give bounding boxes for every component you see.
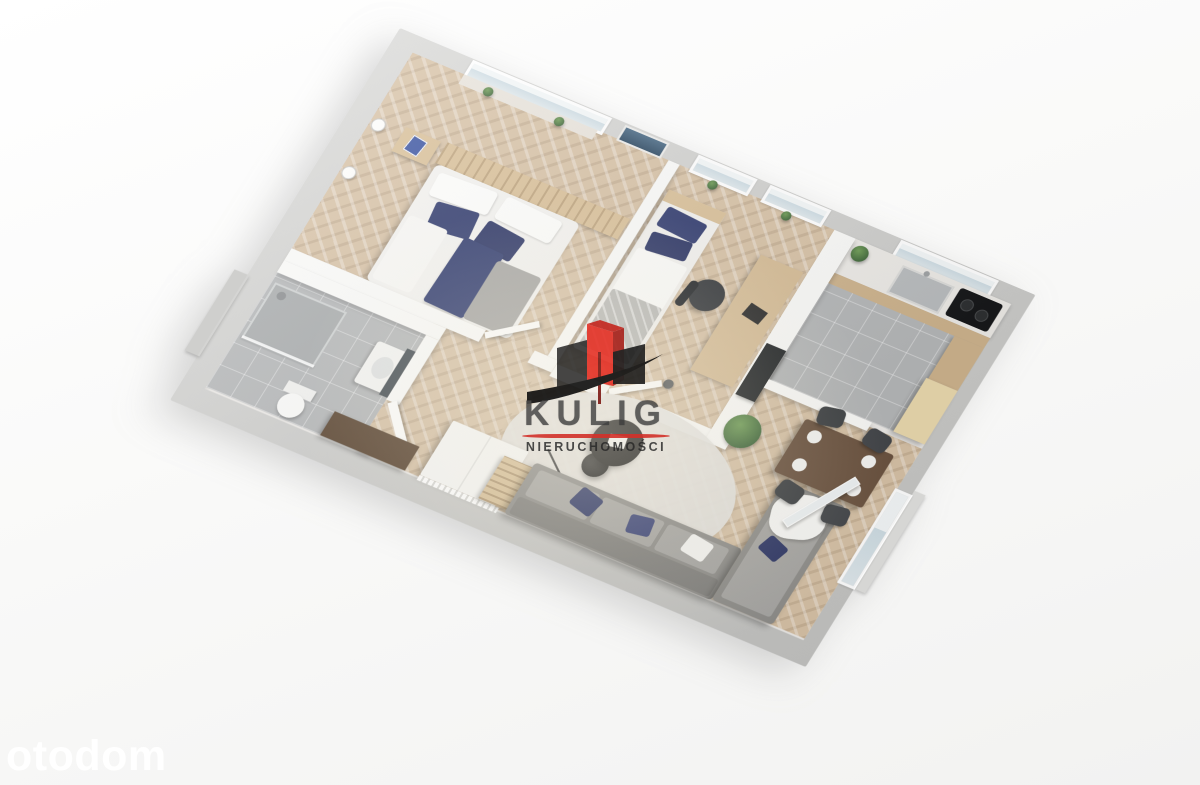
logo-underline: [522, 434, 670, 438]
agency-subtitle: NIERUCHOMOŚCI: [518, 440, 674, 454]
floor-plan-scene: KULIG NIERUCHOMOŚCI otodom: [0, 0, 1200, 785]
portal-watermark: otodom: [6, 732, 167, 781]
agency-logo-watermark: KULIG NIERUCHOMOŚCI: [518, 316, 674, 454]
agency-name: KULIG: [518, 396, 674, 431]
